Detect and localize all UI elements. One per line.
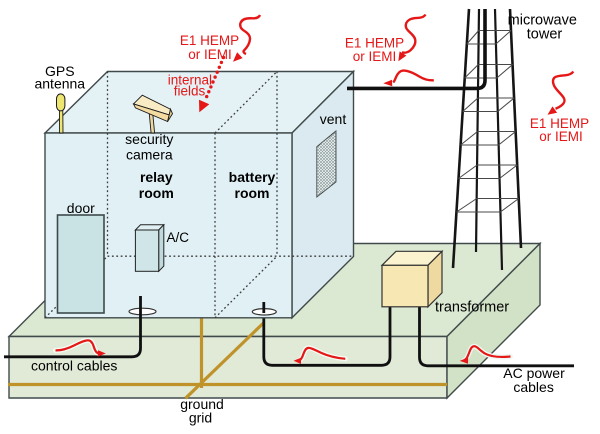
svg-text:fields: fields bbox=[174, 84, 206, 99]
svg-text:E1 HEMP: E1 HEMP bbox=[180, 33, 239, 48]
svg-text:room: room bbox=[139, 185, 174, 201]
svg-text:tower: tower bbox=[527, 27, 563, 43]
svg-text:grid: grid bbox=[189, 409, 212, 425]
svg-text:or IEMI: or IEMI bbox=[353, 49, 397, 64]
svg-text:battery: battery bbox=[229, 169, 276, 185]
svg-text:relay: relay bbox=[140, 169, 173, 185]
svg-text:transformer: transformer bbox=[435, 300, 509, 316]
svg-text:or IEMI: or IEMI bbox=[188, 47, 232, 62]
svg-text:antenna: antenna bbox=[34, 76, 85, 92]
svg-text:control cables: control cables bbox=[31, 358, 117, 374]
svg-text:room: room bbox=[235, 185, 270, 201]
svg-text:vent: vent bbox=[320, 111, 347, 127]
svg-text:camera: camera bbox=[126, 147, 173, 163]
svg-text:door: door bbox=[67, 200, 95, 216]
svg-text:or IEMI: or IEMI bbox=[539, 129, 583, 144]
svg-text:security: security bbox=[125, 131, 173, 147]
svg-text:A/C: A/C bbox=[167, 230, 190, 245]
svg-text:cables: cables bbox=[513, 379, 553, 395]
